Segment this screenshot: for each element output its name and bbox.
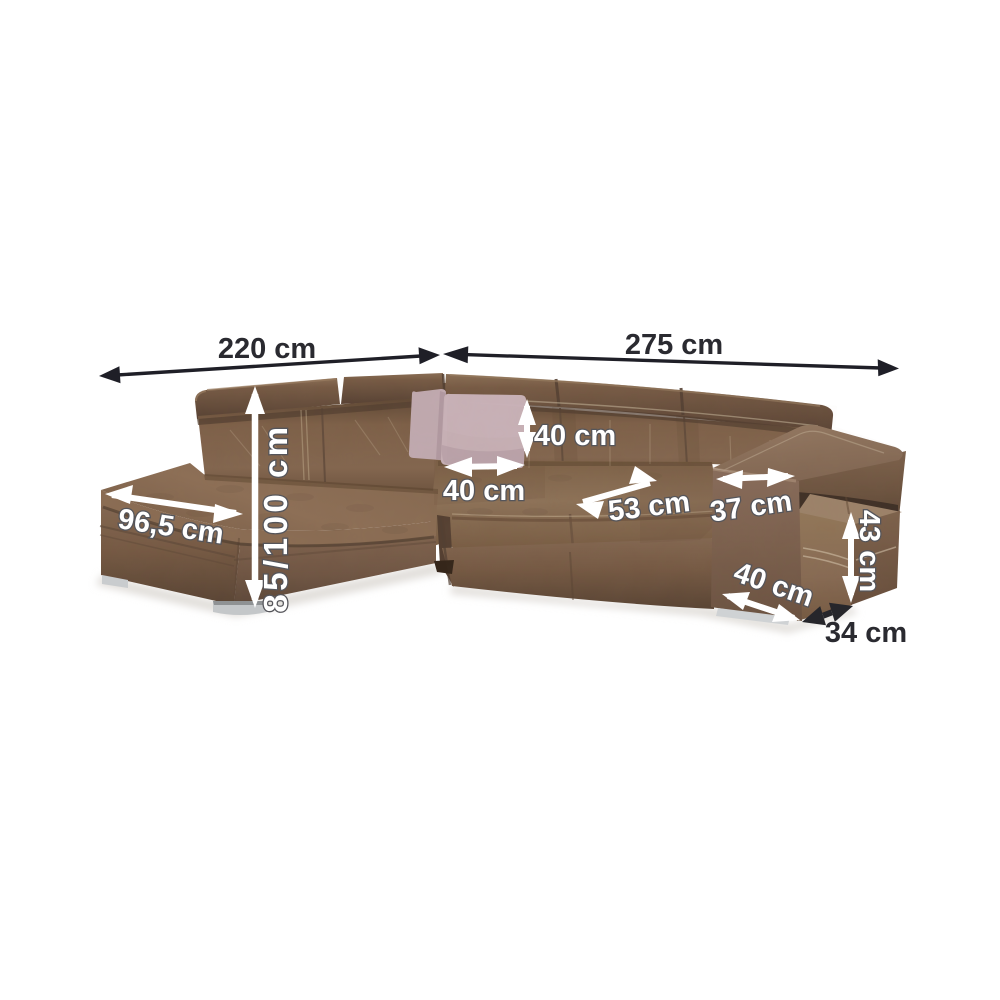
svg-text:220 cm: 220 cm	[218, 333, 316, 365]
svg-text:85/100 cm: 85/100 cm	[257, 423, 294, 612]
svg-text:43 cm: 43 cm	[853, 510, 885, 592]
svg-text:40 cm: 40 cm	[534, 420, 616, 452]
svg-text:275 cm: 275 cm	[625, 329, 723, 361]
svg-text:40 cm: 40 cm	[443, 475, 525, 507]
svg-text:34 cm: 34 cm	[825, 617, 907, 649]
